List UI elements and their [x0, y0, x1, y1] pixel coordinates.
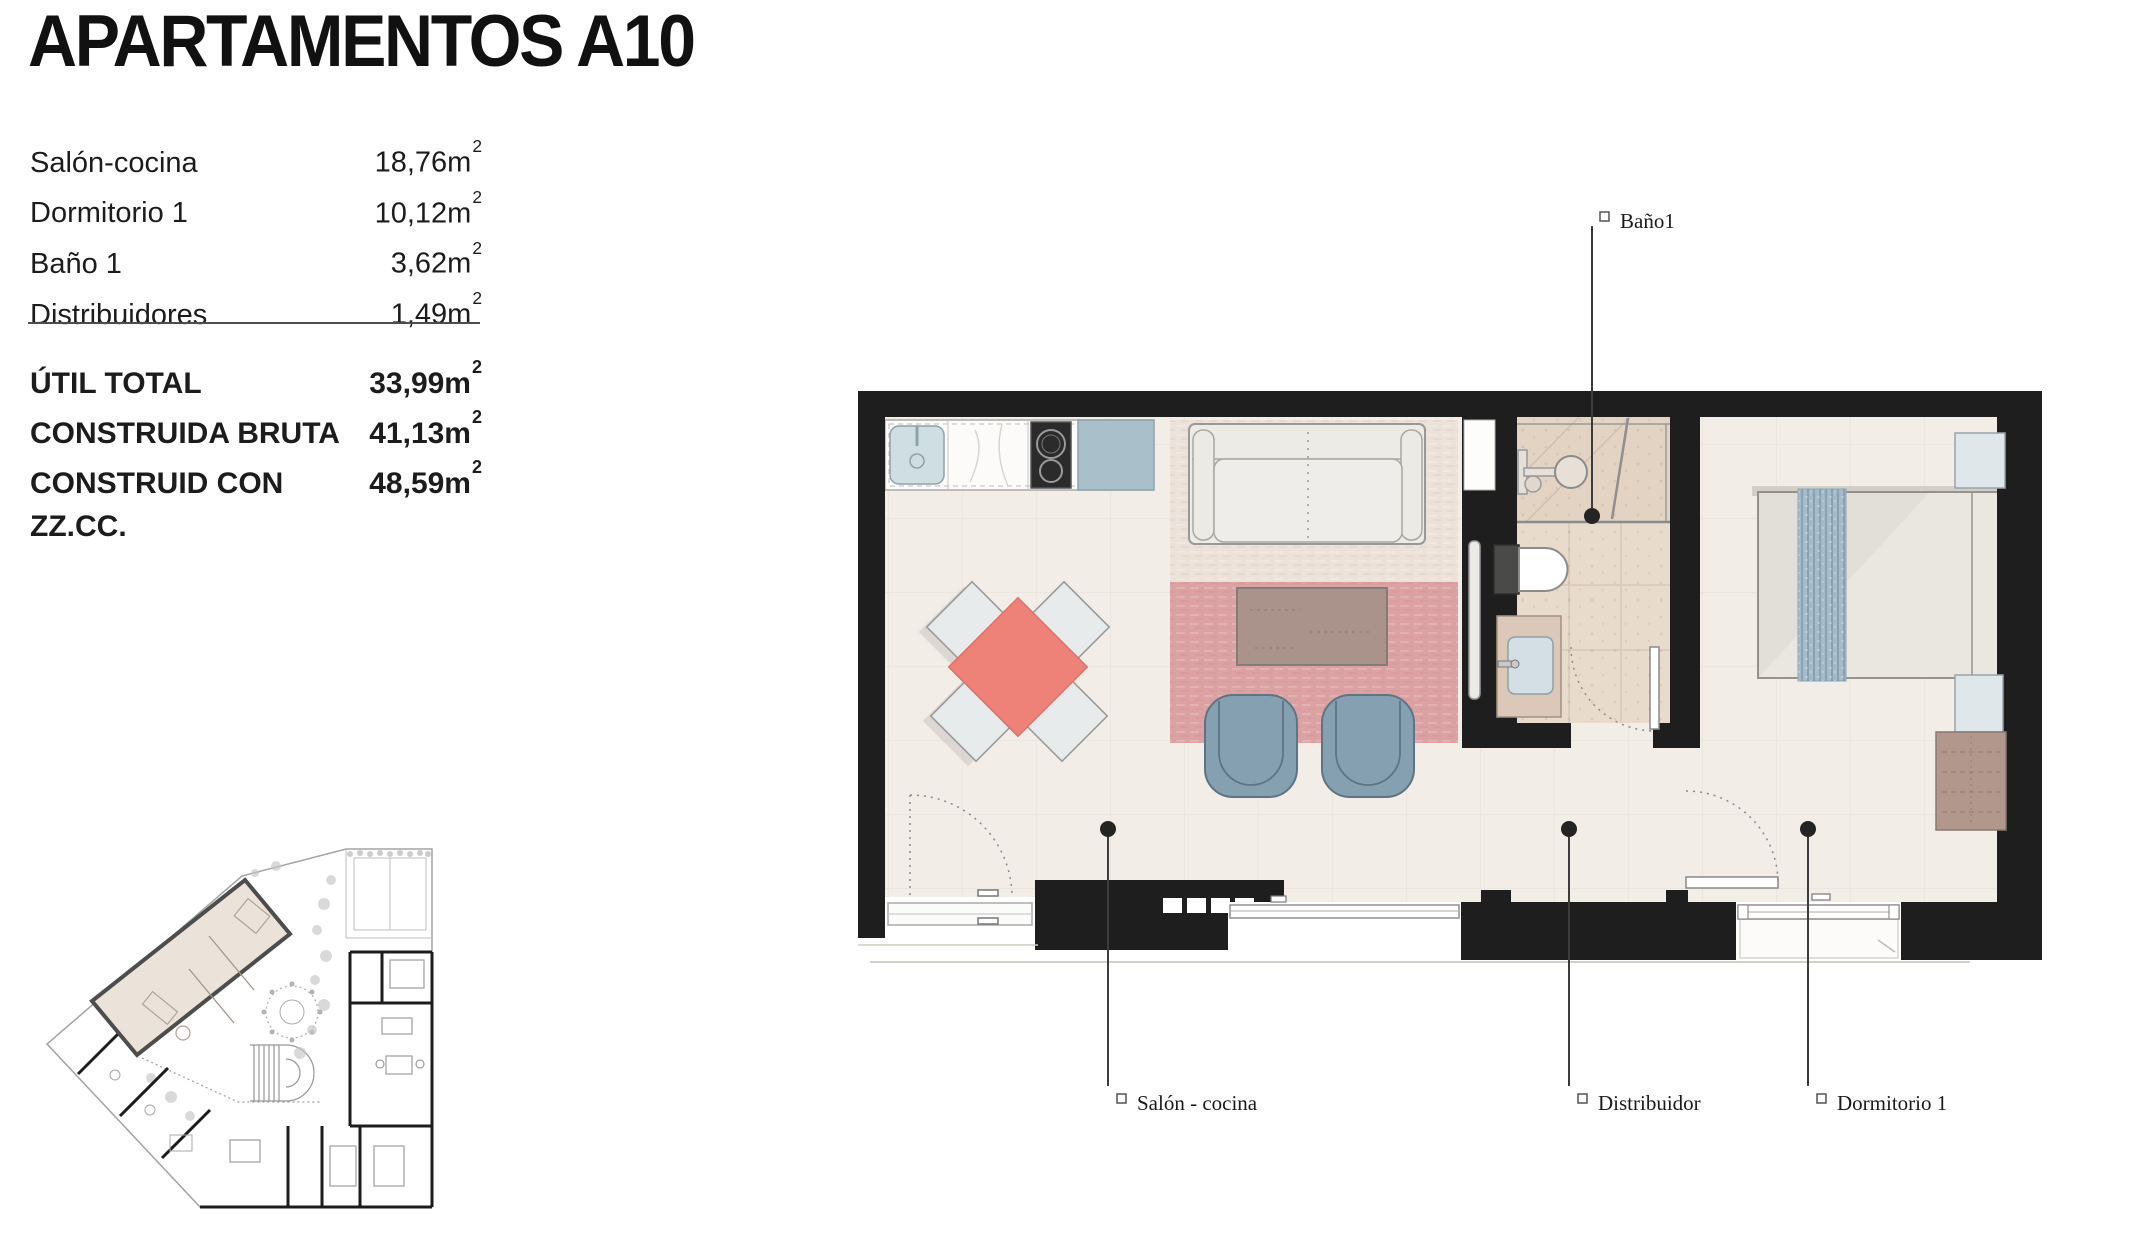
sofa — [1189, 424, 1425, 544]
kitchen-sink — [890, 426, 944, 484]
label-bathroom: Baño1 — [1620, 209, 1675, 233]
wall-bottom-right — [1901, 902, 2042, 960]
wall-top — [858, 391, 2042, 417]
wall-left — [858, 391, 885, 938]
kitchen-appliance — [1078, 420, 1154, 490]
nightstand — [1955, 433, 2005, 488]
floorplan-sheet: APARTAMENTOS A10 Salón-cocina 18,76m2 Do… — [0, 0, 2152, 1240]
wall-bath-bottom-stub — [1653, 723, 1700, 748]
window-handle — [1812, 894, 1830, 900]
label-marker — [1117, 1094, 1126, 1103]
armchair — [1205, 695, 1297, 797]
building-key-plan — [30, 840, 500, 1212]
wall-bath-bedroom — [1670, 415, 1700, 748]
toilet — [1494, 545, 1568, 594]
armchair — [1322, 695, 1414, 797]
label-marker — [1578, 1094, 1587, 1103]
label-bedroom: Dormitorio 1 — [1837, 1091, 1947, 1115]
living-window — [1228, 896, 1461, 960]
wall-bottom-center — [1461, 902, 1736, 960]
nightstand — [1955, 675, 2003, 732]
wall-notch — [1666, 890, 1688, 904]
bed-runner — [1798, 489, 1846, 681]
stove — [1031, 422, 1071, 488]
bed — [1752, 486, 1998, 681]
kitchen-counter — [885, 420, 1154, 490]
label-marker — [1817, 1094, 1826, 1103]
coffee-table — [1237, 588, 1387, 665]
door-handle — [978, 890, 998, 896]
label-marker — [1600, 212, 1609, 221]
bathroom-vanity — [1497, 616, 1561, 717]
label-hall: Distribuidor — [1598, 1091, 1701, 1115]
wall-bath-bottom — [1483, 723, 1571, 748]
door-handle — [978, 918, 998, 924]
wall-niche — [1464, 420, 1495, 490]
bedroom-window — [1736, 894, 1901, 960]
window-handle — [1271, 896, 1286, 902]
dresser — [1936, 732, 2006, 830]
label-living: Salón - cocina — [1137, 1091, 1258, 1115]
wall-notch — [1481, 890, 1511, 904]
sliding-door-panel — [1469, 541, 1480, 699]
